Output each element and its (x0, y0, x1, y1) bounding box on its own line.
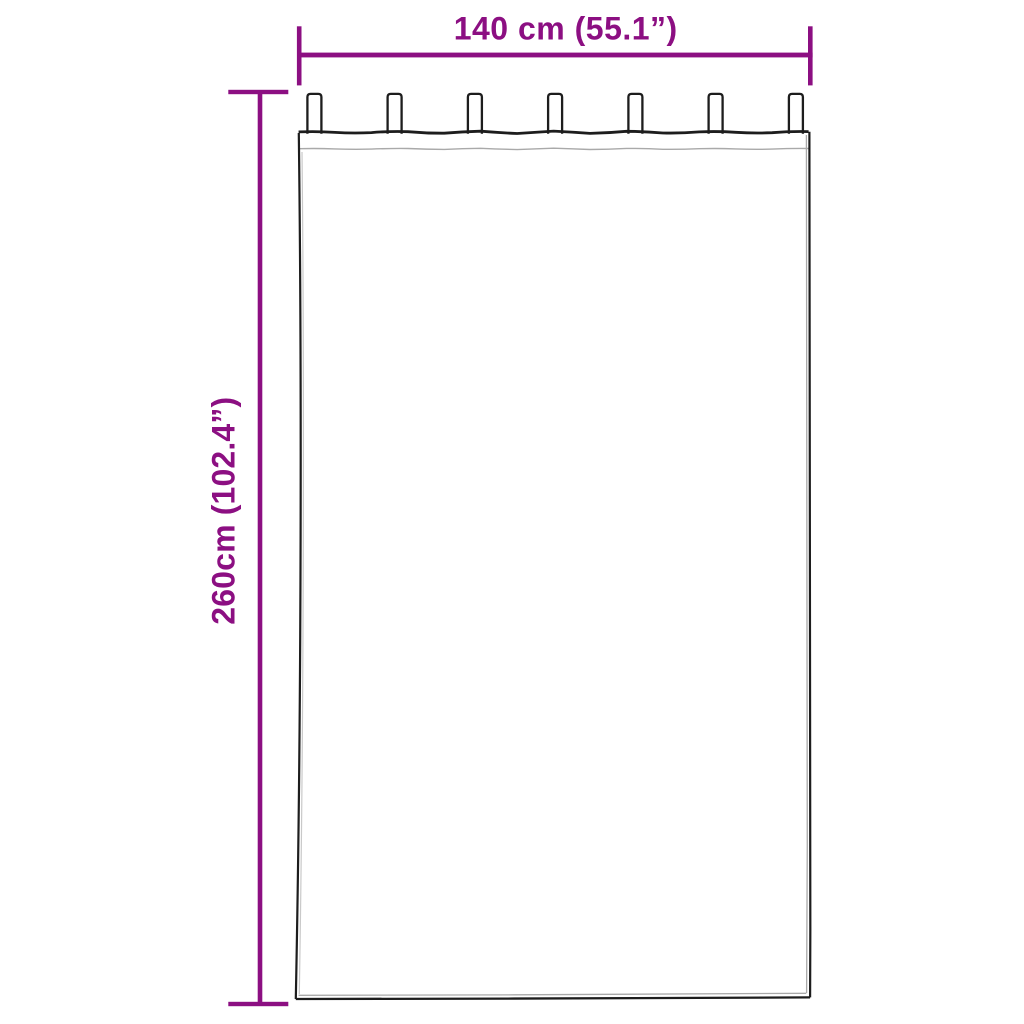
svg-text:140 cm (55.1”): 140 cm (55.1”) (454, 10, 678, 46)
svg-text:260cm (102.4”): 260cm (102.4”) (206, 397, 242, 625)
